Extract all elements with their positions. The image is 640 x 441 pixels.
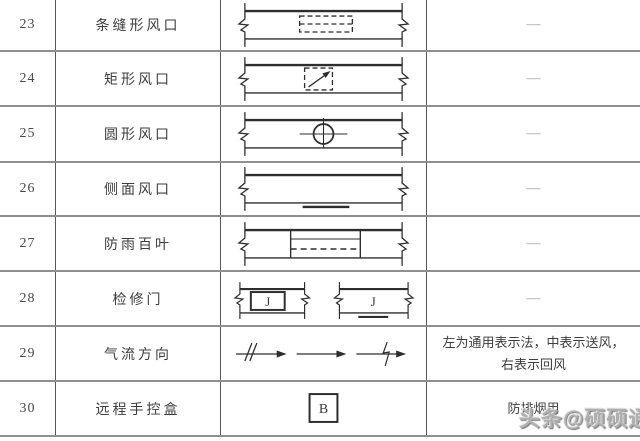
slot-air-outlet-icon [221,0,426,50]
symbol-name-label: 检修门 [56,272,221,325]
symbol-name-label: 侧面风口 [56,163,221,215]
symbol-name-label: 矩形风口 [56,52,221,105]
symbol-cell [221,163,427,215]
symbol-name-label: 远程手控盒 [56,382,221,435]
circular-air-outlet-icon [221,108,426,160]
row-number: 30 [0,382,56,435]
row-number: 29 [0,327,56,380]
row-number: 24 [0,52,56,105]
note-cell: — [427,272,640,325]
note-cell: — [427,107,640,161]
row-number: 27 [0,217,56,270]
duct-break-left-icon [239,167,248,211]
symbol-name-label: 条缝形风口 [56,0,221,50]
note-cell: — [427,52,640,105]
symbol-cell [221,327,427,380]
row-number: 25 [0,107,56,161]
duct-break-left-icon [239,57,248,101]
note-cell: — [427,0,640,50]
symbol-name-label: 防雨百叶 [56,217,221,270]
table-row: 25 圆形风口 — [0,107,640,163]
symbol-cell: B [221,382,427,435]
duct-break-left-icon [239,3,248,47]
symbol-table-page: 23 条缝形风口 — 24 矩形风口 [0,0,640,441]
table-row: 23 条缝形风口 — [0,0,640,52]
symbol-cell [221,0,427,50]
table-row: 27 防雨百叶 — [0,217,640,272]
symbol-name-label: 圆形风口 [56,107,221,161]
symbol-cell: J J [221,272,427,325]
table-row: 24 矩形风口 — [0,52,640,107]
side-air-outlet-icon [221,163,426,215]
symbol-cell [221,52,427,105]
duct-break-right-icon [399,222,408,266]
table-row: 29 气流方向 左为通用表示法，中表示送风，右表 [0,327,640,382]
table-row: 26 侧面风口 — [0,163,640,217]
duct-break-right-icon [399,57,408,101]
duct-break-left-icon [239,222,248,266]
duct-break-right-icon [399,112,408,156]
rainproof-louver-icon [221,218,426,270]
table-row: 28 检修门 J J [0,272,640,327]
row-number: 26 [0,163,56,215]
access-door-letter: J [265,293,270,308]
symbol-cell [221,107,427,161]
access-door-icon: J J [221,273,426,325]
airflow-direction-icon [221,328,426,380]
toutiao-watermark: 头条@硕硕通 [519,403,640,433]
arrowhead-icon [277,350,287,357]
note-cell: — [427,163,640,215]
arrowhead-icon [396,350,406,357]
note-cell: 左为通用表示法，中表示送风，右表示回风 [427,327,640,380]
row-number: 28 [0,272,56,325]
hvac-symbol-table: 23 条缝形风口 — 24 矩形风口 [0,0,640,437]
symbol-name-label: 气流方向 [56,327,221,380]
duct-break-left-icon [239,112,248,156]
control-box-letter: B [319,401,328,416]
access-door-letter: J [371,293,376,308]
duct-break-right-icon [399,167,408,211]
symbol-cell [221,217,427,270]
note-cell: — [427,217,640,270]
remote-hand-control-box-icon: B [221,383,426,435]
arrowhead-icon [336,350,346,357]
diagonal-arrowhead-icon [322,71,330,78]
row-number: 23 [0,0,56,50]
rectangular-air-outlet-icon [221,53,426,105]
duct-break-right-icon [399,3,408,47]
